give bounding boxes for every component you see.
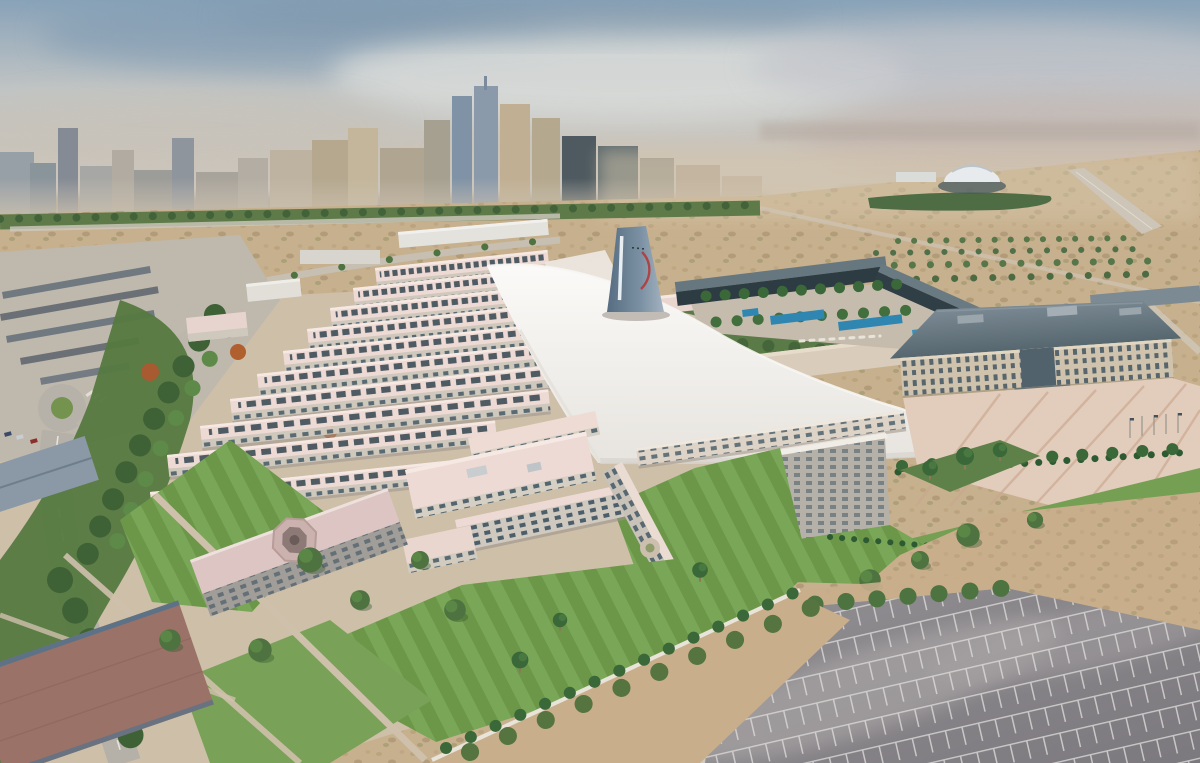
admin-entrance-glass [1020,347,1057,387]
tower-window [642,248,644,250]
flowering-tree [230,344,246,360]
aerial-photo-canvas [0,0,1200,763]
flowering-tree [141,363,159,381]
roundabout-island [51,397,73,419]
courtyard-fountain-center [646,544,655,553]
arena-shed [896,172,936,182]
city-tower-spire [484,76,487,90]
aerial-photo [0,0,1200,763]
service-shed [300,250,380,264]
tower-window [637,248,639,250]
tower-window [632,247,634,249]
far-city-band [760,122,1200,140]
